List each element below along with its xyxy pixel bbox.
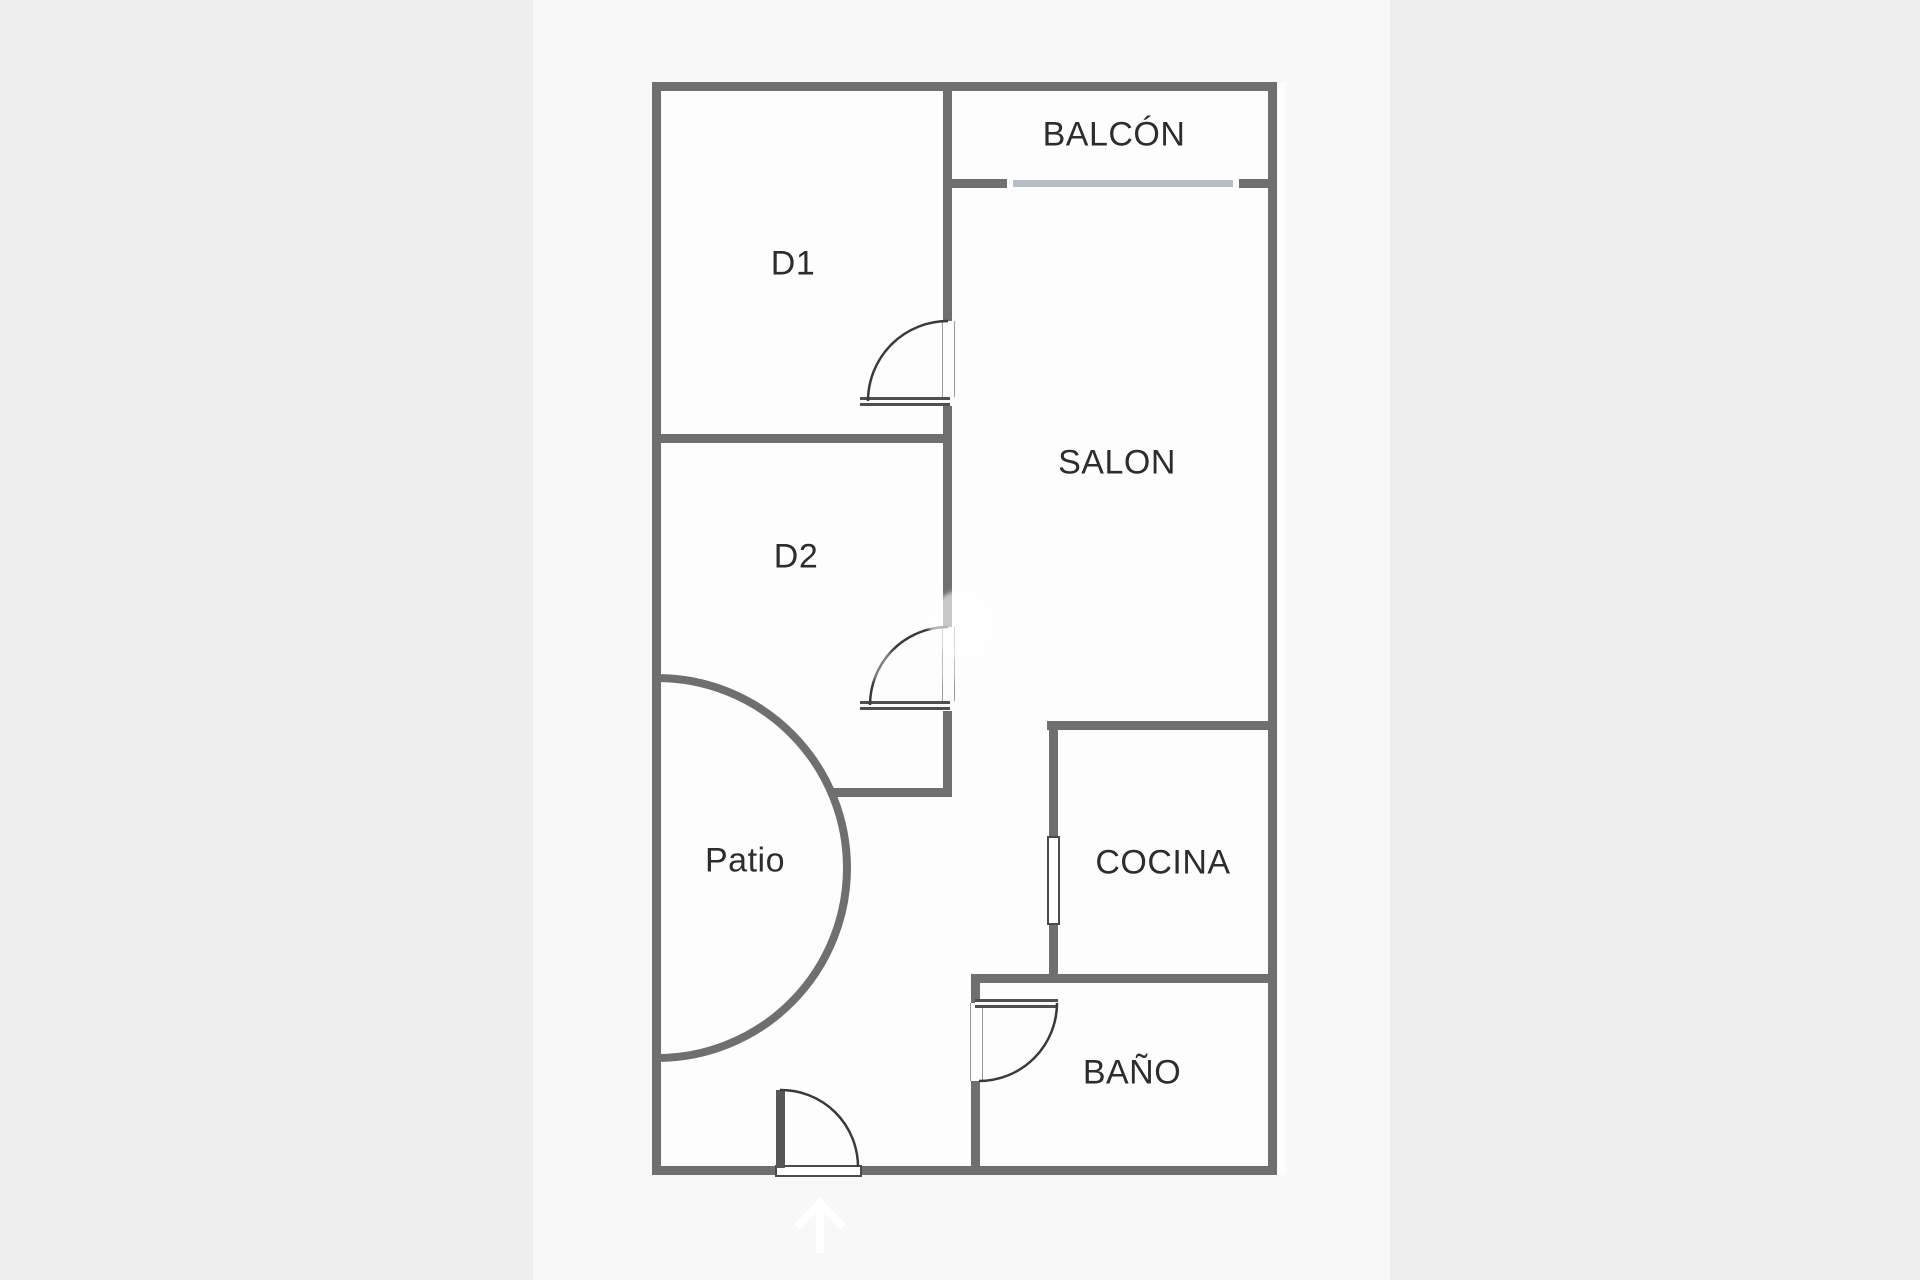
d2-door-leaf	[860, 701, 950, 710]
watermark-text-band	[868, 652, 1068, 680]
room-label-d2: D2	[774, 538, 818, 577]
entrance-threshold	[775, 1165, 862, 1177]
room-label-d1: D1	[771, 245, 815, 284]
room-label-patio: Patio	[705, 842, 785, 881]
floorplan-canvas: BALCÓN D1 SALON D2 Patio COCINA BAÑO	[0, 0, 1920, 1280]
wall-balcony-right-segment	[1239, 179, 1268, 188]
wall-kitchen-top	[1047, 721, 1277, 730]
wall-d2-salon-lower	[943, 711, 952, 797]
room-label-balcon: BALCÓN	[1043, 116, 1186, 155]
wall-d1-bottom	[652, 434, 952, 443]
entrance-door-leaf	[776, 1090, 785, 1168]
wall-outer-top	[652, 82, 1277, 91]
bathroom-door-leaf	[975, 999, 1058, 1008]
balcony-window	[1013, 180, 1233, 187]
wall-hall-stub	[832, 788, 952, 797]
wall-kitchen-left-upper	[1049, 725, 1058, 838]
wall-outer-left	[652, 82, 661, 1175]
wall-outer-bottom	[652, 1166, 1277, 1175]
wall-balcony-left-segment	[943, 179, 1007, 188]
bathroom-door-opening	[970, 1003, 983, 1081]
wall-bathroom-left-lower	[971, 1081, 980, 1166]
room-label-cocina: COCINA	[1095, 844, 1230, 883]
d1-door-opening	[942, 321, 955, 397]
room-label-bano: BAÑO	[1083, 1054, 1181, 1093]
wall-bathroom-top	[971, 974, 1277, 983]
wall-d1-salon-upper	[943, 82, 952, 322]
kitchen-sliding-door	[1047, 836, 1060, 925]
wall-outer-right	[1268, 82, 1277, 1175]
d1-door-leaf	[860, 397, 950, 406]
room-label-salon: SALON	[1058, 444, 1176, 483]
watermark-icon	[929, 590, 997, 658]
